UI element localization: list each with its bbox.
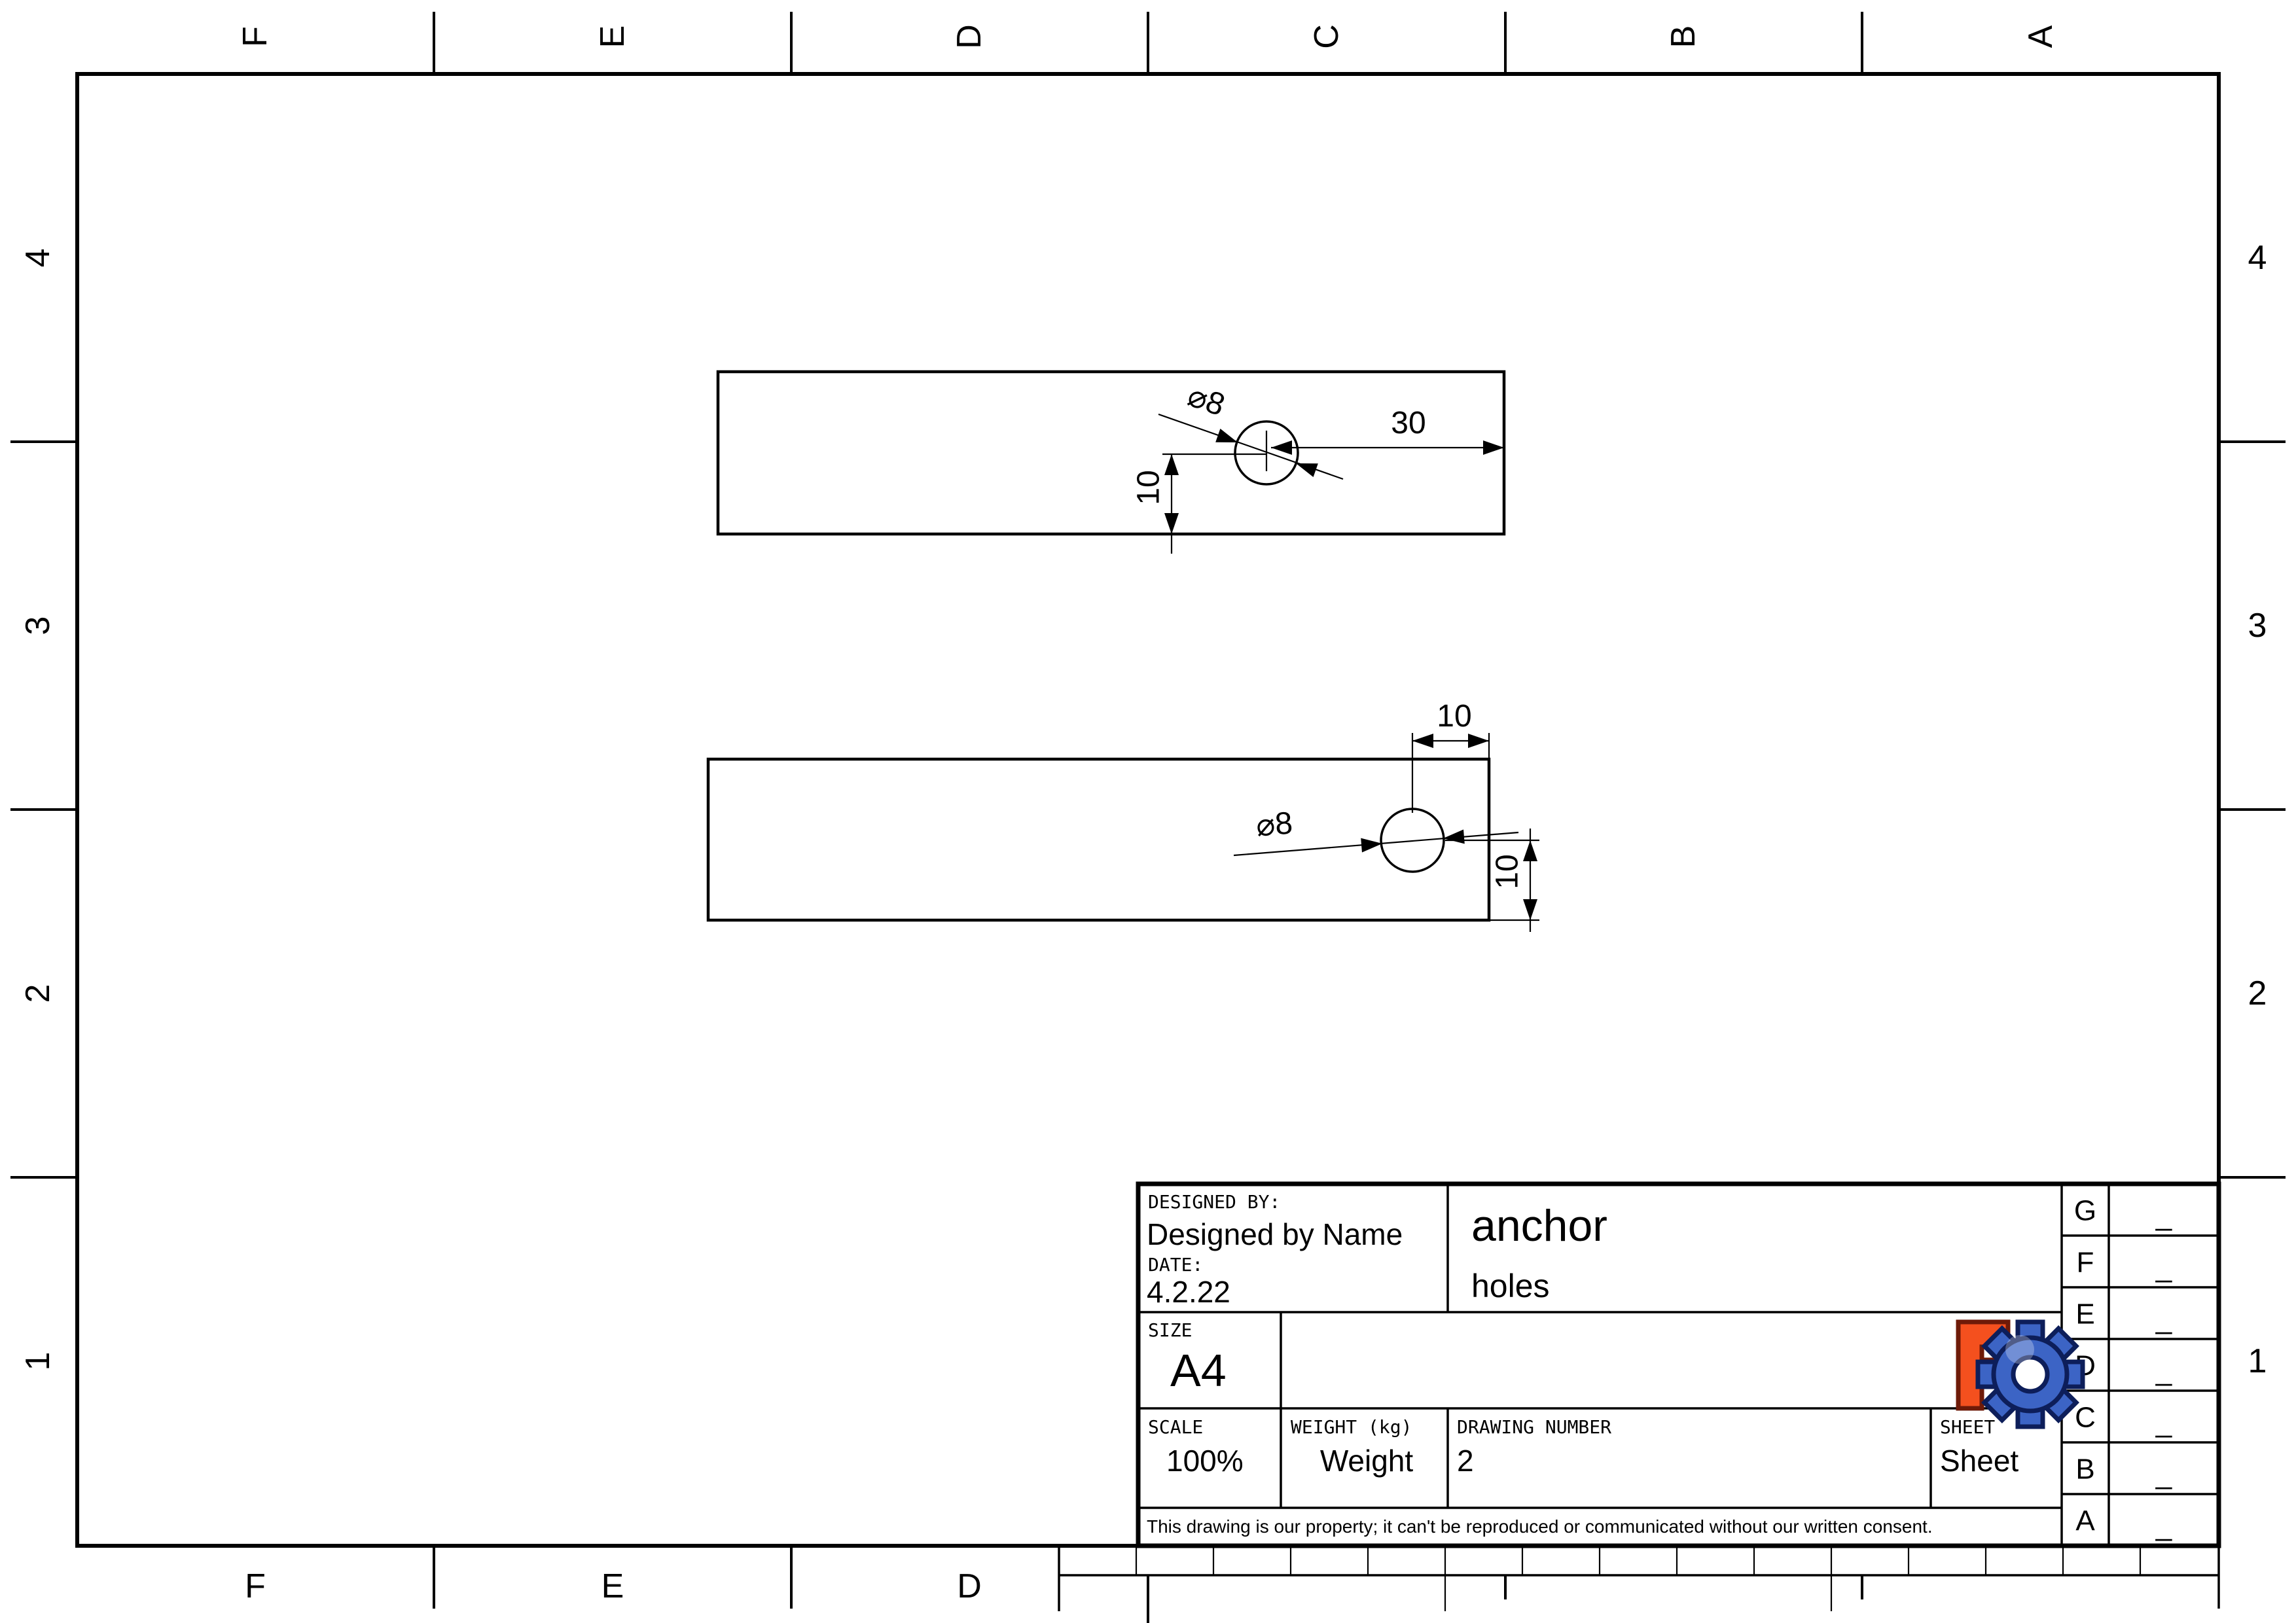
revision-entry: _ [2155, 1303, 2172, 1335]
revision-table: G F E D C B A _ _ _ _ _ _ _ [2062, 1184, 2219, 1546]
title-cell: anchor holes [1471, 1201, 1607, 1304]
revision-letter: F [2077, 1247, 2094, 1279]
scale-value: 100% [1166, 1444, 1244, 1478]
arrowhead-right [1468, 734, 1489, 748]
scale-label: SCALE [1148, 1416, 1203, 1438]
weight-cell: WEIGHT (kg) Weight [1291, 1416, 1413, 1478]
dimension-text: 30 [1391, 406, 1426, 440]
revision-entry: _ [2155, 1406, 2172, 1438]
zone-number-right: 2 [2248, 974, 2267, 1012]
revision-entry: _ [2155, 1458, 2172, 1490]
logo-gear-body [1978, 1322, 2083, 1427]
logo-gear [1978, 1322, 2083, 1427]
sheet-value: Sheet [1940, 1444, 2018, 1478]
revision-entry: _ [2155, 1200, 2172, 1232]
dimension-10-vertical: 10 [1445, 829, 1539, 932]
sheet-label: SHEET [1940, 1416, 1995, 1438]
dimension-30: 30 [1271, 406, 1504, 455]
zone-number-right: 4 [2248, 239, 2267, 277]
dimension-10-vertical: 10 [1132, 454, 1267, 554]
zone-number-left: 3 [19, 616, 57, 635]
drawing-sheet: F E D C B A F E D 4 3 2 1 4 3 2 1 [0, 0, 2296, 1623]
dimension-diameter: ⌀8 [1234, 806, 1518, 855]
title-block: DESIGNED BY: Designed by Name DATE: 4.2.… [1138, 1184, 2219, 1546]
sheet-frame: F E D C B A F E D 4 3 2 1 4 3 2 1 [10, 12, 2286, 1623]
zone-letter-top: B [1664, 26, 1702, 48]
sheet-cell: SHEET Sheet [1940, 1416, 2018, 1478]
arrowhead [1361, 836, 1383, 852]
zone-letter-bottom: E [601, 1567, 624, 1605]
revision-letter: A [2075, 1505, 2095, 1537]
zone-labels: F E D C B A F E D 4 3 2 1 4 3 2 1 [19, 24, 2267, 1605]
zone-number-left: 4 [19, 249, 57, 268]
disclaimer-text: This drawing is our property; it can't b… [1147, 1516, 1933, 1537]
revision-entry: _ [2155, 1251, 2172, 1283]
designed-by-label: DESIGNED BY: [1148, 1191, 1280, 1213]
dimension-text: ⌀8 [1183, 378, 1229, 423]
drawing-canvas: F E D C B A F E D 4 3 2 1 4 3 2 1 [0, 0, 2296, 1623]
arrowhead [1443, 829, 1465, 845]
freecad-logo-icon [1958, 1322, 2083, 1427]
drawing-number-value: 2 [1457, 1444, 1474, 1478]
revision-letter: C [2075, 1402, 2096, 1434]
revision-letter: B [2075, 1454, 2094, 1486]
revision-letter: E [2075, 1298, 2094, 1330]
arrowhead-left [1412, 734, 1433, 748]
revision-entry: _ [2155, 1510, 2172, 1542]
zone-number-right: 3 [2248, 607, 2267, 645]
part-outline [718, 372, 1504, 534]
designer-cell: DESIGNED BY: Designed by Name DATE: 4.2.… [1147, 1191, 1403, 1309]
gear-highlight [2005, 1335, 2034, 1364]
arrowhead-down [1523, 899, 1537, 920]
metric-ruler [1059, 1546, 2219, 1623]
date-label: DATE: [1148, 1254, 1203, 1275]
revision-entry: _ [2155, 1355, 2172, 1387]
dimension-text: ⌀8 [1255, 806, 1294, 843]
dimension-text: 10 [1437, 699, 1471, 734]
zone-letter-top: C [1308, 24, 1346, 49]
dimension-diameter: ⌀8 [1158, 378, 1343, 479]
part-view-bottom: 10 ⌀8 10 [708, 699, 1539, 932]
weight-label: WEIGHT (kg) [1291, 1416, 1412, 1438]
right-zone-ticks [2219, 442, 2286, 1177]
designed-by-value: Designed by Name [1147, 1217, 1403, 1251]
zone-letter-top: E [594, 26, 632, 48]
scale-cell: SCALE 100% [1148, 1416, 1244, 1478]
arrowhead-right [1483, 440, 1504, 455]
zone-letter-top: A [2022, 25, 2060, 48]
size-value: A4 [1170, 1345, 1227, 1396]
dimension-text: 10 [1490, 854, 1525, 889]
drawing-number-cell: DRAWING NUMBER 2 [1457, 1416, 1611, 1478]
zone-letter-top: D [950, 24, 988, 49]
zone-letter-bottom: D [957, 1567, 982, 1605]
dimension-text: 10 [1132, 470, 1166, 505]
dimension-10-horizontal: 10 [1412, 699, 1489, 813]
size-label: SIZE [1148, 1319, 1192, 1341]
zone-letter-bottom: F [245, 1567, 266, 1605]
date-value: 4.2.22 [1147, 1275, 1230, 1309]
part-view-top: 30 10 ⌀8 [718, 372, 1504, 554]
part-outline [708, 759, 1489, 920]
revision-letter: G [2074, 1195, 2096, 1227]
weight-value: Weight [1320, 1444, 1414, 1478]
arrowhead-up [1164, 454, 1179, 475]
size-cell: SIZE A4 [1148, 1319, 1227, 1396]
drawing-number-label: DRAWING NUMBER [1457, 1416, 1611, 1438]
left-zone-ticks [10, 442, 77, 1177]
zone-number-right: 1 [2248, 1342, 2267, 1380]
zone-number-left: 1 [19, 1352, 57, 1371]
arrowhead-up [1523, 840, 1537, 861]
drawing-subtitle: holes [1471, 1268, 1550, 1304]
zone-number-left: 2 [19, 984, 57, 1003]
arrowhead-down [1164, 513, 1179, 534]
top-zone-ticks [434, 12, 1862, 74]
arrowhead-left [1271, 440, 1292, 455]
zone-letter-top: F [236, 26, 274, 47]
drawing-title: anchor [1471, 1201, 1607, 1251]
